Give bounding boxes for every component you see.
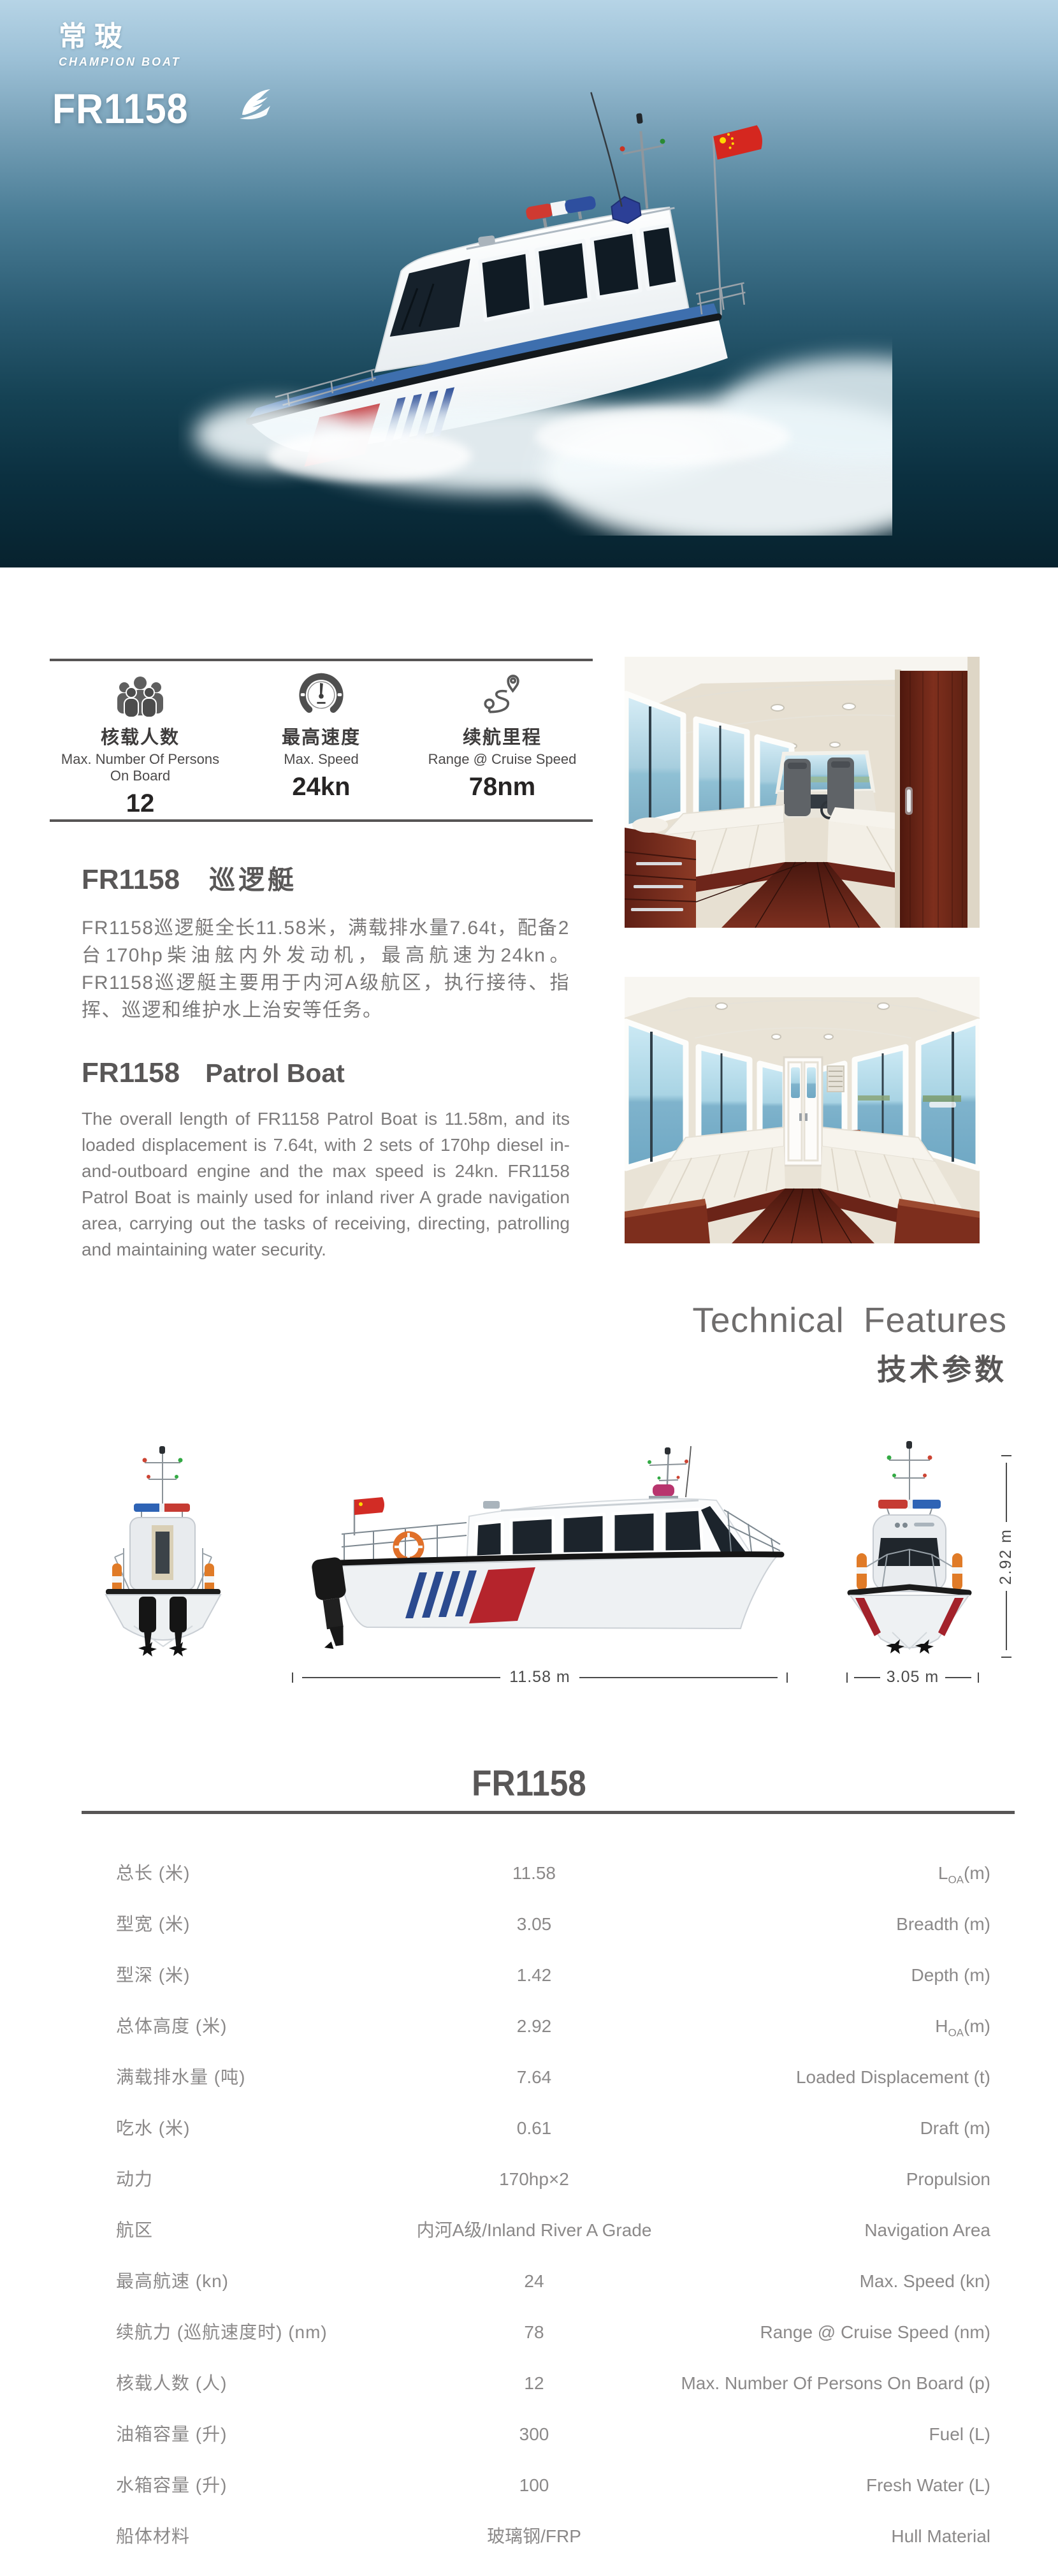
intro-heading-cn: FR1158 巡逻艇 [82, 858, 570, 896]
intro-section-cn: FR1158 巡逻艇 FR1158巡逻艇全长11.58米，满载排水量7.64t，… [82, 858, 570, 1024]
spec-value: 170hp×2 [311, 2167, 757, 2192]
intro-heading-en: FR1158 Patrol Boat [82, 1057, 570, 1089]
spec-range-label-zh: 续航里程 [463, 722, 542, 749]
spec-row: 航区内河A级/Inland River A GradeNavigation Ar… [82, 2218, 1015, 2246]
spec-row: 油箱容量 (升)300Fuel (L) [82, 2422, 1015, 2450]
spec-label-en: Fresh Water (L) [866, 2473, 990, 2498]
spec-speed-label-zh: 最高速度 [282, 722, 361, 749]
spec-label-zh: 吃水 (米) [116, 2116, 190, 2141]
beam-dimension-label: 3.05 m [887, 1668, 939, 1687]
speedometer-icon [298, 672, 344, 718]
spec-range: 续航里程 Range @ Cruise Speed 78nm [412, 671, 593, 818]
stern-view-drawing [96, 1441, 233, 1661]
spec-value: 24 [311, 2269, 757, 2294]
spec-range-value: 78nm [469, 773, 536, 801]
route-icon [480, 671, 525, 718]
spec-label-zh: 最高航速 (kn) [116, 2269, 229, 2294]
spec-label-en: Loaded Displacement (t) [796, 2065, 990, 2090]
spec-value: 内河A级/Inland River A Grade [311, 2218, 757, 2243]
spec-label-en: Navigation Area [864, 2218, 990, 2243]
intro-body-en: The overall length of FR1158 Patrol Boat… [82, 1106, 570, 1262]
spec-row: 满载排水量 (吨)7.64Loaded Displacement (t) [82, 2065, 1015, 2093]
spec-row: 水箱容量 (升)100Fresh Water (L) [82, 2473, 1015, 2501]
length-dimension: 11.58 m [292, 1668, 788, 1687]
spec-persons-label-en: Max. Number Of Persons On Board [52, 751, 229, 784]
spec-label-en: HOA(m) [935, 2014, 990, 2046]
brand-name-en: CHAMPION BOAT [59, 55, 181, 69]
spec-row: 最高航速 (kn)24Max. Speed (kn) [82, 2269, 1015, 2297]
brochure-page: 常玻 CHAMPION BOAT FR1158 [0, 0, 1058, 2576]
tech-features-heading: Technical Features 技术参数 [692, 1299, 1007, 1389]
spec-row: 船体材料玻璃钢/FRPHull Material [82, 2524, 1015, 2552]
interior-photo-aft [625, 977, 980, 1243]
spec-label-zh: 水箱容量 (升) [116, 2473, 227, 2498]
spec-row: 型深 (米)1.42Depth (m) [82, 1963, 1015, 1991]
height-dimension: 2.92 m [997, 1455, 1015, 1658]
spec-value: 100 [311, 2473, 757, 2498]
spec-speed-value: 24kn [292, 773, 350, 801]
spec-label-en: Max. Number Of Persons On Board (p) [681, 2371, 990, 2396]
spec-row: 动力170hp×2Propulsion [82, 2167, 1015, 2195]
spec-label-zh: 型深 (米) [116, 1963, 190, 1988]
feather-logo-icon [237, 87, 273, 124]
spec-speed: 最高速度 Max. Speed 24kn [231, 671, 412, 818]
spec-label-en: LOA(m) [938, 1861, 990, 1893]
spec-range-label-en: Range @ Cruise Speed [428, 751, 577, 768]
spec-label-en: Propulsion [906, 2167, 990, 2192]
hero-model-number: FR1158 [52, 84, 188, 133]
height-dimension-label: 2.92 m [997, 1528, 1015, 1584]
intro-body-cn: FR1158巡逻艇全长11.58米，满载排水量7.64t，配备2台170hp柴油… [82, 914, 570, 1024]
spec-label-en: Depth (m) [911, 1963, 990, 1988]
spec-label-zh: 满载排水量 (吨) [116, 2065, 245, 2090]
spec-row: 总体高度 (米)2.92HOA(m) [82, 2014, 1015, 2042]
spec-value: 玻璃钢/FRP [311, 2524, 757, 2549]
hero-section: 常玻 CHAMPION BOAT FR1158 [0, 0, 1058, 567]
spec-value: 11.58 [311, 1861, 757, 1886]
spec-label-zh: 型宽 (米) [116, 1912, 190, 1937]
length-dimension-label: 11.58 m [509, 1668, 570, 1687]
divider-rule-bottom [50, 819, 593, 822]
intro-name-cn: 巡逻艇 [209, 858, 297, 896]
spec-label-zh: 核载人数 (人) [116, 2371, 227, 2396]
persons-group-icon [113, 675, 168, 718]
spec-value: 0.61 [311, 2116, 757, 2141]
spec-label-zh: 续航力 (巡航速度时) (nm) [116, 2320, 328, 2345]
beam-dimension: 3.05 m [846, 1668, 979, 1687]
intro-name-en: Patrol Boat [205, 1058, 345, 1088]
divider-rule-top [50, 659, 593, 661]
spec-table-rule [82, 1811, 1015, 1814]
spec-label-zh: 船体材料 [116, 2524, 190, 2549]
spec-row: 续航力 (巡航速度时) (nm)78Range @ Cruise Speed (… [82, 2320, 1015, 2348]
spec-label-zh: 总体高度 (米) [116, 2014, 227, 2039]
spec-persons: 核载人数 Max. Number Of Persons On Board 12 [50, 671, 231, 818]
spec-label-en: Breadth (m) [896, 1912, 990, 1937]
spec-speed-label-en: Max. Speed [284, 751, 358, 768]
intro-model-cn: FR1158 [82, 864, 180, 896]
hero-boat-illustration [178, 64, 892, 536]
tech-features-title-zh: 技术参数 [692, 1347, 1007, 1389]
spec-persons-value: 12 [126, 789, 155, 818]
intro-model-en: FR1158 [82, 1057, 180, 1089]
spec-value: 3.05 [311, 1912, 757, 1937]
spec-label-en: Draft (m) [920, 2116, 990, 2141]
spec-row: 总长 (米)11.58LOA(m) [82, 1861, 1015, 1889]
spec-label-zh: 总长 (米) [116, 1861, 190, 1886]
spec-value: 78 [311, 2320, 757, 2345]
spec-label-en: Hull Material [891, 2524, 990, 2549]
intro-section-en: FR1158 Patrol Boat The overall length of… [82, 1057, 570, 1262]
spec-row: 型宽 (米)3.05Breadth (m) [82, 1912, 1015, 1940]
brand-name-cn: 常玻 [59, 23, 130, 51]
brand-logo: 常玻 CHAMPION BOAT [59, 23, 181, 69]
spec-label-zh: 油箱容量 (升) [116, 2422, 227, 2447]
tech-features-title-en: Technical Features [692, 1299, 1007, 1340]
spec-label-zh: 动力 [116, 2167, 153, 2192]
spec-persons-label-zh: 核载人数 [101, 722, 180, 749]
spec-label-zh: 航区 [116, 2218, 153, 2243]
spec-value: 1.42 [311, 1963, 757, 1988]
spec-table-title: FR1158 [53, 1762, 1005, 1804]
spec-label-en: Max. Speed (kn) [860, 2269, 990, 2294]
side-view-drawing [278, 1438, 797, 1662]
spec-label-en: Range @ Cruise Speed (nm) [760, 2320, 990, 2345]
spec-label-en: Fuel (L) [929, 2422, 990, 2447]
interior-photo-forward [625, 657, 980, 928]
spec-row: 核载人数 (人)12Max. Number Of Persons On Boar… [82, 2371, 1015, 2399]
bow-view-drawing [841, 1441, 978, 1661]
spec-row: 吃水 (米)0.61Draft (m) [82, 2116, 1015, 2144]
spec-value: 300 [311, 2422, 757, 2447]
spec-value: 2.92 [311, 2014, 757, 2039]
key-specs-strip: 核载人数 Max. Number Of Persons On Board 12 … [50, 671, 593, 818]
spec-value: 7.64 [311, 2065, 757, 2090]
